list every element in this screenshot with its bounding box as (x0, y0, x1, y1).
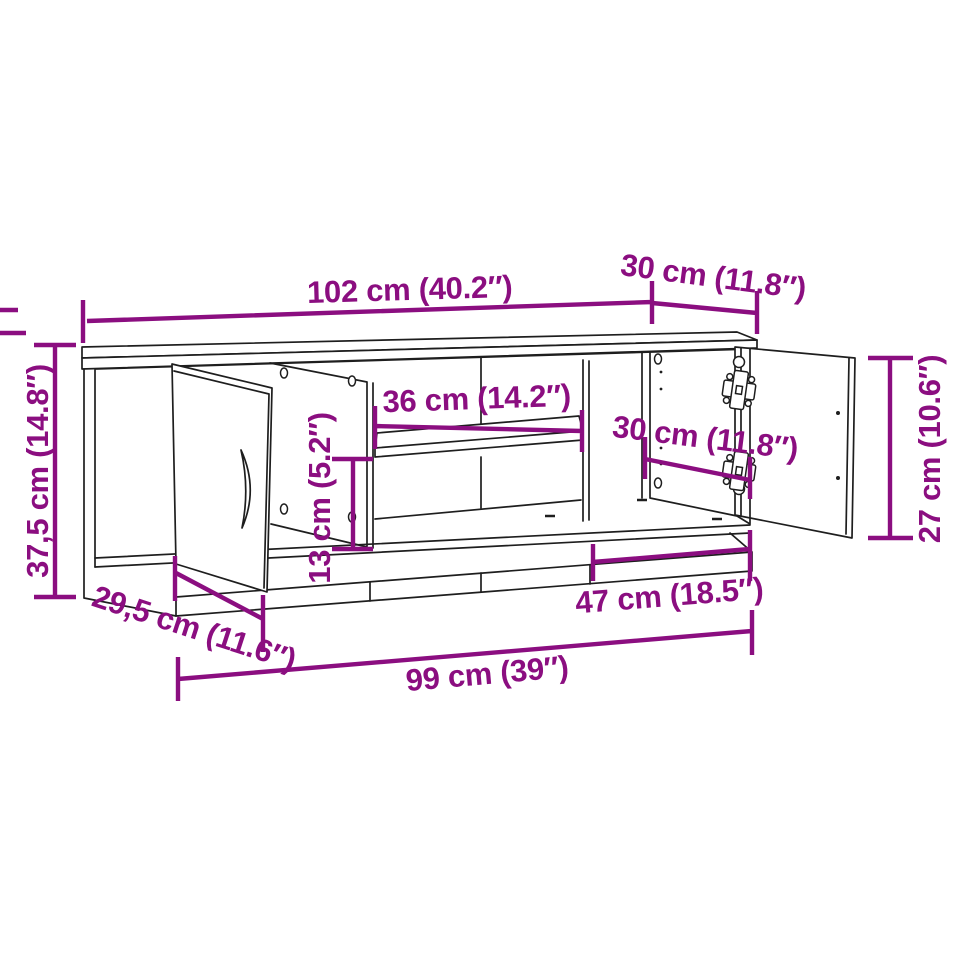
dim-label-door-height: 27 cm (10.6″) (912, 355, 947, 543)
pin-hole-dot (660, 388, 663, 391)
door-screw-dot (836, 411, 840, 415)
dim-label-top-width: 102 cm (40.2″) (307, 269, 513, 310)
pin-hole-dot (660, 371, 663, 374)
left-door (172, 364, 272, 592)
hinge-cup-hole (734, 357, 745, 368)
dim-label-height: 37,5 cm (14.8″) (20, 364, 55, 578)
dim-label-top-depth: 30 cm (11.8″) (619, 247, 809, 306)
dim-label-base-right-section: 47 cm (18.5″) (574, 571, 765, 621)
dim-label-lower-opening-height: 13 cm (5.2″) (302, 412, 337, 584)
shelf-pin-hole (281, 368, 288, 378)
shelf-pin-hole (349, 376, 356, 386)
dim-label-shelf-width: 36 cm (14.2″) (382, 378, 572, 420)
diagram-page: 102 cm (40.2″) 30 cm (11.8″) 37,5 cm (14… (0, 0, 955, 955)
tv-stand-dimension-diagram: 102 cm (40.2″) 30 cm (11.8″) 37,5 cm (14… (0, 0, 955, 955)
dim-label-base-depth: 29,5 cm (11.6″) (88, 579, 300, 678)
plinth-seams (370, 565, 590, 601)
shelf-pin-hole (281, 504, 288, 514)
dim-edge-artifact (0, 310, 26, 333)
door-screw-dot (836, 476, 840, 480)
cam-fitting-marks (545, 500, 722, 519)
dim-line-door-height (868, 358, 913, 538)
shelf-pin-hole (655, 354, 662, 364)
shelf-pin-hole (655, 478, 662, 488)
left-door-face (172, 364, 272, 592)
